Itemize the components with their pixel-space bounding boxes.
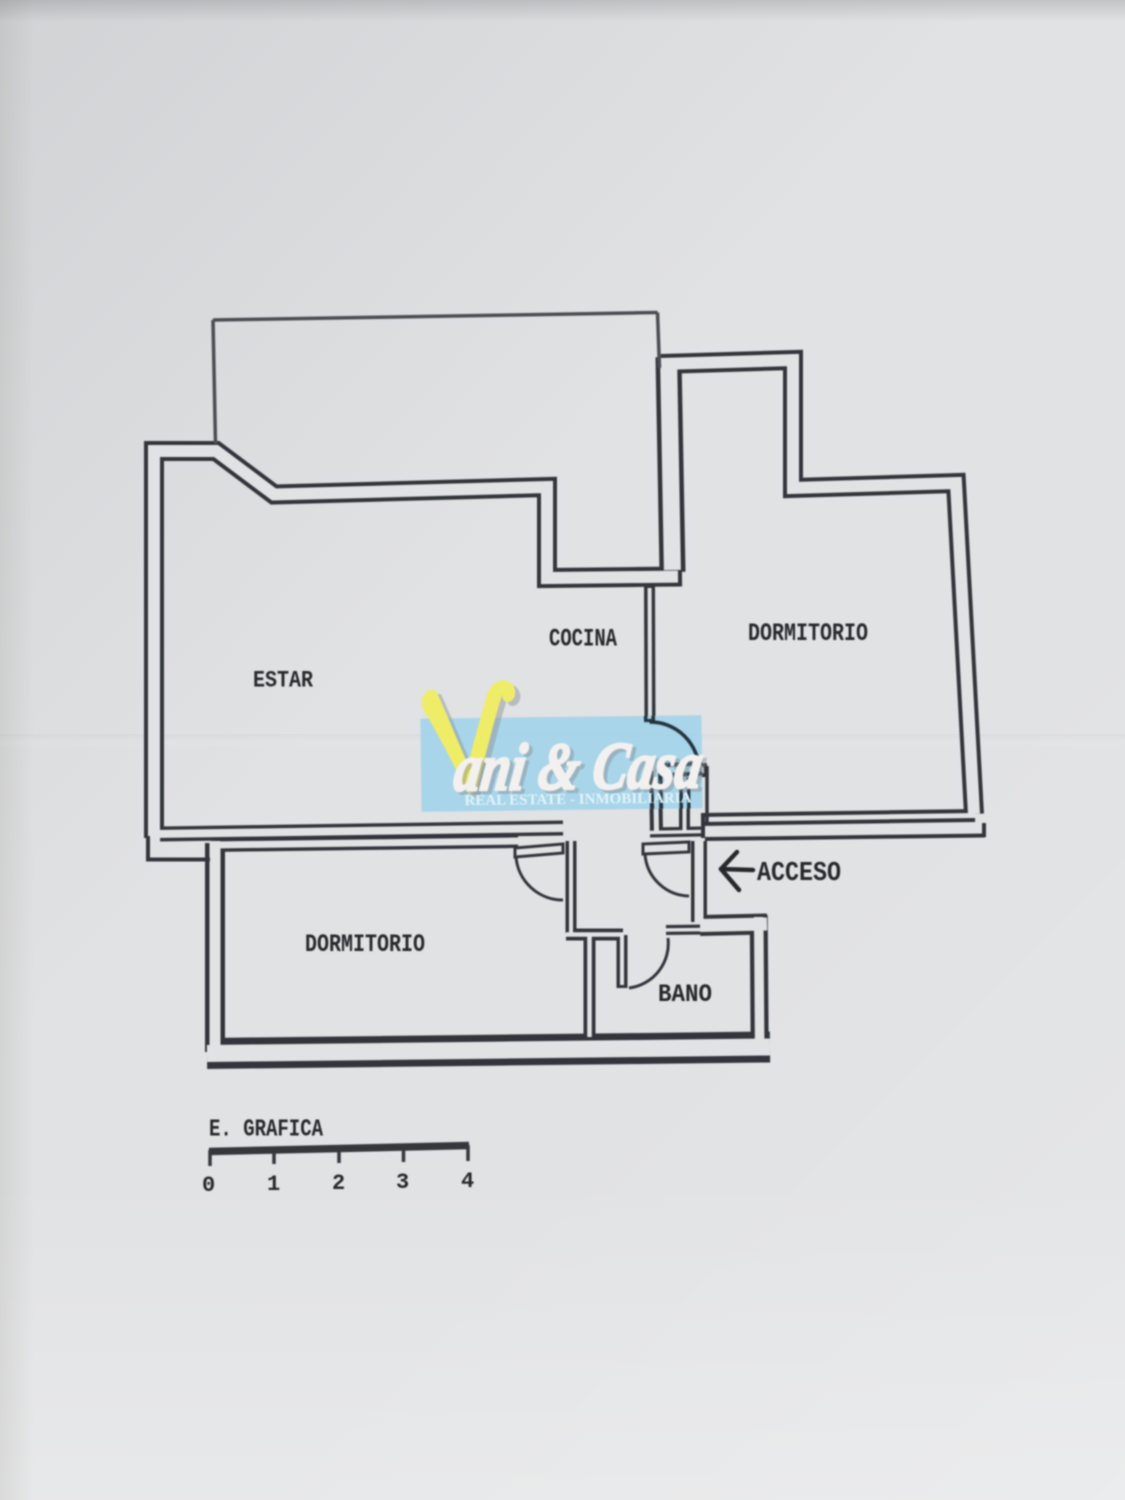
svg-text:3: 3 [396, 1170, 409, 1195]
svg-text:1: 1 [267, 1172, 280, 1197]
svg-text:COCINA: COCINA [549, 625, 617, 654]
svg-text:0: 0 [202, 1173, 215, 1198]
svg-text:REAL ESTATE - INMOBILIARIA: REAL ESTATE - INMOBILIARIA [464, 790, 691, 809]
svg-text:DORMITORIO: DORMITORIO [305, 930, 425, 959]
svg-text:4: 4 [461, 1169, 474, 1194]
svg-text:ACCESO: ACCESO [757, 859, 841, 889]
svg-text:E. GRAFICA: E. GRAFICA [209, 1117, 323, 1144]
svg-text:DORMITORIO: DORMITORIO [748, 619, 868, 648]
svg-text:BANO: BANO [658, 980, 712, 1009]
svg-text:ESTAR: ESTAR [253, 668, 313, 694]
svg-text:2: 2 [332, 1171, 345, 1196]
